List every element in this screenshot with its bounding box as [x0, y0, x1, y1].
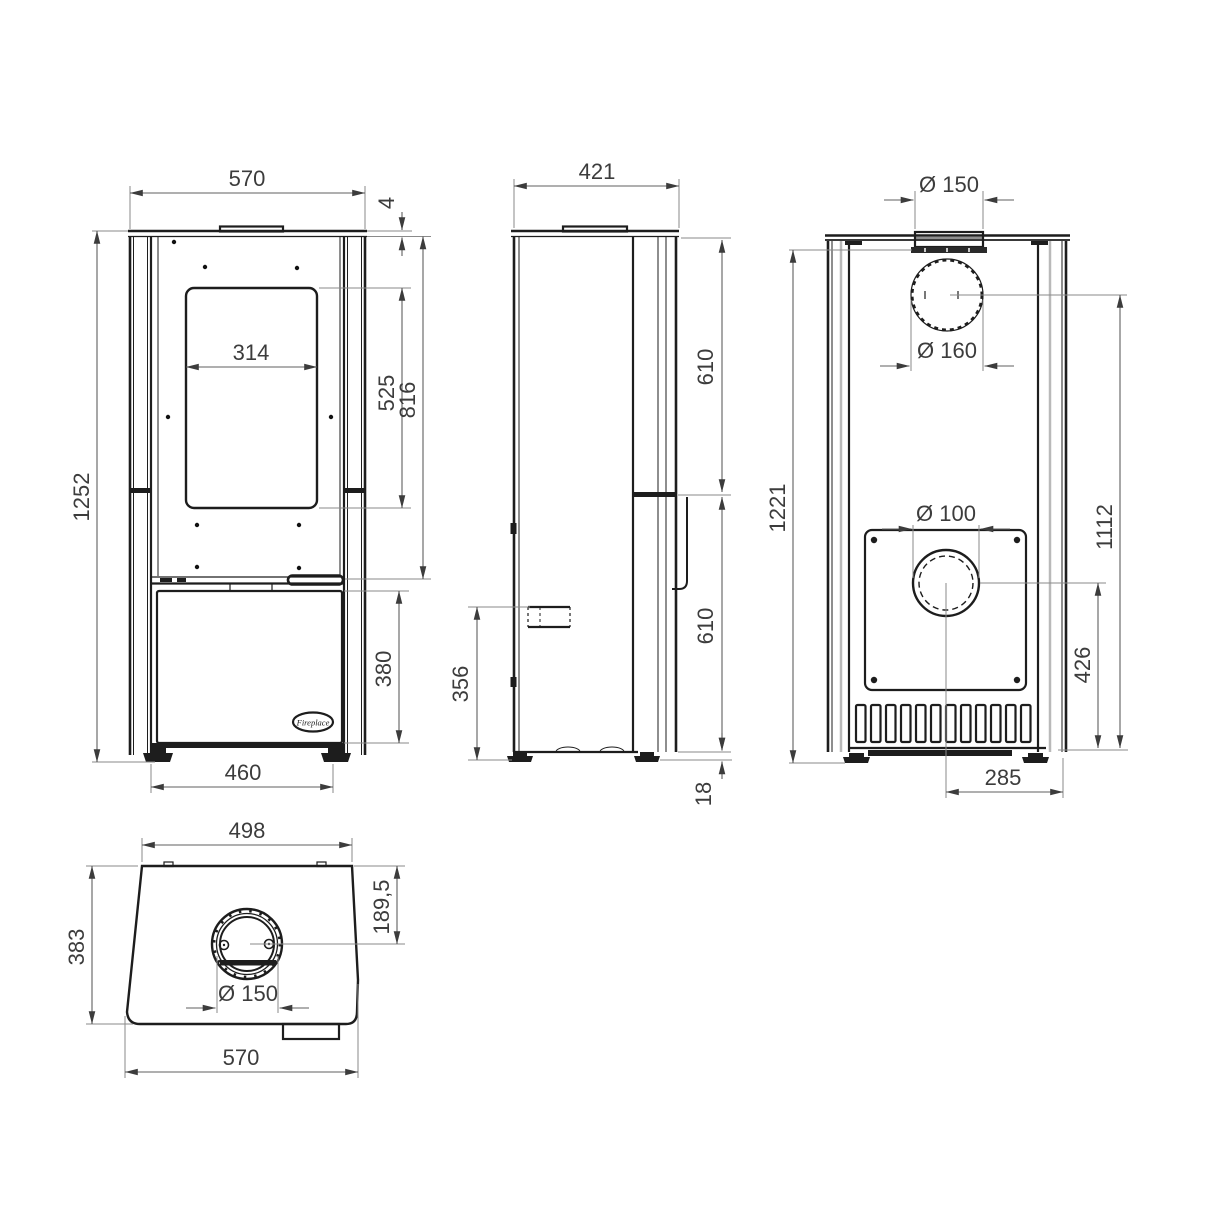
svg-text:Ø 150: Ø 150: [919, 172, 979, 197]
dim-side-upper-section: 610: [678, 238, 731, 495]
svg-text:Ø 100: Ø 100: [916, 501, 976, 526]
top-view: 498 383 189,5 Ø 150 570: [64, 818, 405, 1078]
svg-text:1112: 1112: [1092, 504, 1117, 550]
rear-connection-box: [528, 607, 570, 627]
side-front-edge: [511, 237, 520, 753]
brand-logo: Fireplace: [293, 713, 333, 732]
svg-text:189,5: 189,5: [369, 879, 394, 934]
dim-side-lower-section: 610: [678, 497, 731, 752]
damper-plate-edge: [220, 960, 276, 966]
side-rear-panel: [633, 237, 676, 753]
technical-drawing: Fireplace 570 4 314: [0, 0, 1214, 1214]
top-front-tab: [283, 1024, 339, 1039]
svg-text:1221: 1221: [765, 484, 790, 533]
front-side-panels: [129, 237, 366, 756]
dim-feet-spacing: 460: [151, 760, 333, 793]
rear-foot-left: [843, 753, 870, 763]
dim-foot-height: 18: [660, 733, 732, 806]
door-hinge-upper: [511, 523, 517, 534]
glass-window: [186, 288, 317, 508]
side-foot-rear: [634, 752, 660, 762]
dim-air-center-height: 426: [980, 583, 1106, 748]
svg-text:426: 426: [1070, 647, 1095, 684]
dim-rear-connection-height: 356: [448, 607, 530, 760]
front-foot-right: [321, 747, 351, 762]
dim-collar-diameter: Ø 150: [884, 172, 1014, 229]
side-handle-rod: [672, 497, 687, 589]
svg-text:380: 380: [371, 651, 396, 688]
rear-side-panels: [828, 241, 1066, 752]
svg-text:421: 421: [579, 159, 616, 184]
front-view: Fireplace 570 4 314: [69, 166, 431, 793]
svg-text:18: 18: [691, 782, 716, 806]
rear-top-plate: [825, 236, 1070, 246]
svg-text:4: 4: [374, 197, 399, 209]
svg-text:460: 460: [225, 760, 262, 785]
svg-text:610: 610: [693, 608, 718, 645]
svg-text:570: 570: [229, 166, 266, 191]
dim-top-depth: 383: [64, 866, 138, 1024]
dim-top-rear-width: 498: [142, 818, 352, 862]
dim-rear-body-height: 1221: [765, 250, 912, 763]
rear-foot-right: [1022, 753, 1049, 763]
side-top-plate: [511, 227, 679, 237]
door-hinge-lower: [511, 677, 517, 687]
dim-door-height: 380: [344, 591, 409, 743]
svg-text:383: 383: [64, 929, 89, 966]
brand-logo-text: Fireplace: [296, 718, 330, 728]
svg-text:314: 314: [233, 340, 270, 365]
dim-glass-width: 314: [186, 340, 317, 367]
svg-text:610: 610: [693, 349, 718, 386]
rear-bottom: [850, 748, 1046, 756]
rear-view: Ø 150 Ø 160 Ø 100 1221: [765, 172, 1128, 798]
dim-air-inlet-diameter: Ø 100: [882, 501, 1010, 578]
svg-text:498: 498: [229, 818, 266, 843]
svg-text:285: 285: [985, 765, 1022, 790]
svg-text:Ø 150: Ø 150: [218, 981, 278, 1006]
side-view: 421 610 610 356 18: [448, 159, 732, 806]
svg-text:356: 356: [448, 666, 473, 703]
dim-side-depth: 421: [514, 159, 679, 228]
side-bottom: [514, 747, 638, 752]
svg-text:1252: 1252: [69, 473, 94, 522]
dim-front-overall-width: 570: [130, 166, 365, 229]
vent-grille: [856, 705, 1031, 742]
svg-text:816: 816: [395, 382, 420, 419]
svg-text:Ø 160: Ø 160: [917, 338, 977, 363]
front-top-plate: [128, 227, 367, 237]
svg-text:570: 570: [223, 1045, 260, 1070]
dim-flue-diameter: Ø 160: [880, 300, 1014, 371]
dim-front-plate-thickness: 4: [367, 197, 412, 256]
dim-front-overall-height: 1252: [69, 231, 155, 762]
dim-flue-center-offset: 189,5: [250, 866, 405, 944]
